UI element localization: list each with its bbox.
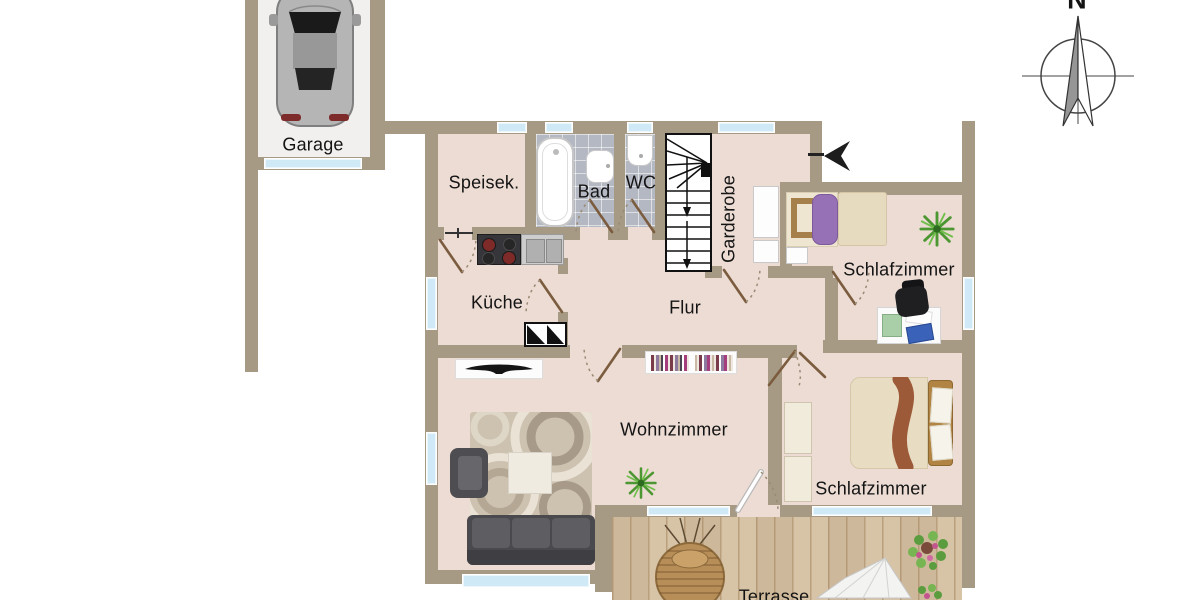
shelf-icon: [645, 351, 737, 374]
bathtub-icon: [536, 137, 574, 227]
floor-plan: Garage Speisek. Bad WC Garderobe Schlafz…: [0, 0, 1200, 600]
window: [462, 574, 590, 588]
entrance-door-line: [808, 153, 824, 156]
window: [545, 122, 573, 133]
sofa-icon: [467, 515, 595, 565]
room-label-wc: WC: [626, 173, 656, 194]
car-icon: [267, 0, 363, 132]
sink-icon: [586, 150, 614, 183]
window: [426, 277, 437, 330]
window: [497, 122, 527, 133]
stairs-icon: [665, 133, 712, 272]
window: [812, 506, 932, 516]
wardrobe-icon: [753, 240, 779, 263]
window: [627, 122, 653, 133]
room-label-schlafzimmer-nord: Schlafzimmer: [843, 260, 954, 281]
armchair-icon: [450, 448, 488, 498]
compass-icon: [1018, 0, 1138, 140]
wall-speisek-bad: [525, 134, 536, 227]
nightstand-icon: [786, 247, 808, 264]
door-swing-icon: [722, 268, 762, 308]
room-label-speisekammer: Speisek.: [449, 173, 520, 194]
tv-sideboard-icon: [455, 359, 543, 379]
room-label-garderobe: Garderobe: [719, 175, 740, 263]
sink-icon: [627, 135, 653, 166]
wardrobe-icon: [784, 456, 812, 502]
hanging-chair-icon: [645, 515, 735, 600]
office-chair-icon: [896, 280, 930, 318]
stove-icon: [477, 234, 521, 265]
door-swing-icon: [524, 274, 564, 314]
wall-wc-stairs: [655, 134, 665, 227]
wall-garage-left: [245, 0, 258, 372]
door-swing-icon: [735, 468, 781, 512]
plant-icon: [918, 210, 956, 248]
compass-north-label: N: [1067, 0, 1087, 16]
door-swing-icon: [616, 194, 656, 234]
flowers-icon: [915, 583, 943, 600]
bed-icon: [850, 377, 953, 469]
bed-icon: [786, 191, 887, 247]
garage-door: [264, 158, 362, 169]
window: [426, 432, 437, 485]
entrance-arrow-icon: [824, 141, 850, 171]
parasol-icon: [815, 552, 915, 600]
room-label-terrasse: Terrasse: [739, 587, 810, 600]
room-label-wohnzimmer: Wohnzimmer: [620, 420, 728, 441]
kitchen-sink-icon: [521, 234, 564, 265]
door-swing-icon: [745, 348, 829, 392]
room-label-bad: Bad: [578, 182, 611, 203]
coffee-table-icon: [508, 452, 552, 494]
flowers-icon: [905, 528, 951, 574]
door-swing-icon: [582, 347, 622, 387]
room-label-garage: Garage: [282, 135, 343, 156]
room-label-kueche: Küche: [471, 293, 523, 314]
plant-icon: [624, 466, 658, 500]
wardrobe-icon: [753, 186, 779, 238]
wardrobe-icon: [784, 402, 812, 454]
room-label-schlafzimmer-sued: Schlafzimmer: [815, 479, 926, 500]
window: [963, 277, 974, 330]
wall-garage-right: [370, 0, 385, 170]
wall-left: [425, 121, 438, 582]
threshold-tick: [457, 228, 459, 238]
wall-entrance-side: [810, 121, 822, 183]
wall-segment: [768, 266, 833, 278]
door-swing-icon: [438, 238, 478, 278]
wall-right: [962, 121, 975, 588]
threshold-line: [445, 232, 473, 234]
room-label-flur: Flur: [669, 298, 701, 319]
chimney-icon: [524, 322, 567, 347]
window: [718, 122, 775, 133]
